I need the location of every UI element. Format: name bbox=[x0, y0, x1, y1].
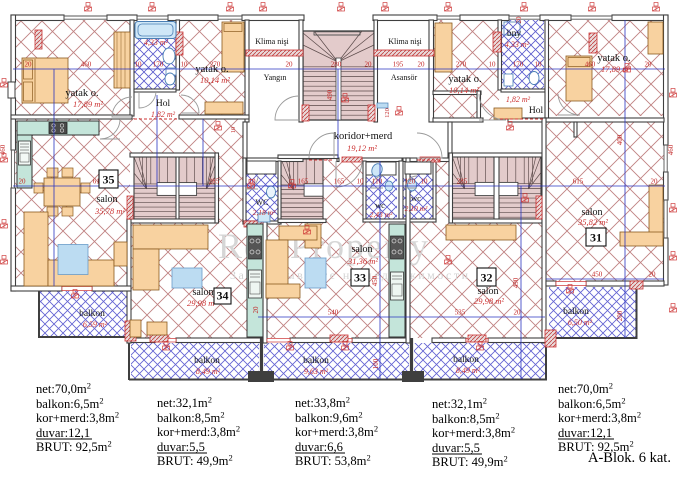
svg-text:yatak o.: yatak o. bbox=[195, 64, 228, 75]
svg-text:285: 285 bbox=[457, 178, 468, 186]
svg-text:20: 20 bbox=[645, 61, 653, 69]
svg-text:170: 170 bbox=[153, 61, 164, 69]
svg-text:bny: bny bbox=[507, 29, 522, 39]
svg-text:20: 20 bbox=[19, 178, 27, 186]
svg-text:20: 20 bbox=[649, 271, 657, 279]
svg-text:kor+merd:3,8m2: kor+merd:3,8m2 bbox=[36, 410, 119, 426]
svg-text:balkon:8,5m2: balkon:8,5m2 bbox=[432, 411, 500, 427]
svg-text:Klima nişi: Klima nişi bbox=[255, 37, 289, 46]
svg-text:285: 285 bbox=[209, 178, 220, 186]
svg-text:10: 10 bbox=[135, 61, 143, 69]
svg-text:balkon:8,5m2: balkon:8,5m2 bbox=[157, 410, 225, 426]
svg-text:6,59 m²: 6,59 m² bbox=[83, 320, 108, 329]
svg-text:A-Blok. 6 kat.: A-Blok. 6 kat. bbox=[588, 450, 671, 466]
svg-text:20: 20 bbox=[286, 61, 294, 69]
svg-text:balkon:9,6m2: balkon:9,6m2 bbox=[295, 410, 363, 426]
svg-text:kor+merd:3,8m2: kor+merd:3,8m2 bbox=[157, 424, 240, 440]
svg-text:4,33 m²: 4,33 m² bbox=[505, 40, 530, 49]
svg-text:kor+merd:3,8m2: kor+merd:3,8m2 bbox=[432, 425, 515, 441]
svg-text:120: 120 bbox=[384, 108, 391, 118]
svg-text:10: 10 bbox=[489, 61, 497, 69]
svg-text:17,89 m²: 17,89 m² bbox=[73, 99, 103, 109]
svg-text:balkon: balkon bbox=[194, 356, 220, 366]
svg-text:Asansör: Asansör bbox=[391, 73, 418, 82]
svg-text:Hol: Hol bbox=[529, 106, 544, 116]
svg-text:460: 460 bbox=[81, 61, 92, 69]
svg-text:WC: WC bbox=[256, 198, 269, 207]
svg-text:110: 110 bbox=[372, 178, 383, 186]
svg-text:Yangın: Yangın bbox=[264, 73, 287, 82]
svg-text:salon: salon bbox=[96, 194, 117, 205]
svg-text:120: 120 bbox=[405, 178, 416, 186]
svg-text:400: 400 bbox=[616, 134, 624, 145]
svg-text:kor+merd:3,8m2: kor+merd:3,8m2 bbox=[558, 410, 641, 426]
svg-text:wc: wc bbox=[375, 200, 385, 210]
svg-text:20: 20 bbox=[25, 61, 33, 69]
svg-text:BRUT: 49,9m2: BRUT: 49,9m2 bbox=[432, 454, 508, 470]
svg-text:10,14 m²: 10,14 m² bbox=[200, 75, 230, 85]
svg-text:20: 20 bbox=[651, 178, 659, 186]
svg-text:8,49 m²: 8,49 m² bbox=[196, 367, 221, 376]
svg-text:BRUT: 53,8m2: BRUT: 53,8m2 bbox=[295, 453, 371, 469]
svg-text:540: 540 bbox=[328, 309, 339, 317]
svg-text:35: 35 bbox=[103, 173, 115, 187]
svg-text:balkon: balkon bbox=[303, 356, 329, 366]
svg-text:450: 450 bbox=[371, 275, 379, 286]
svg-text:31,36 m²: 31,36 m² bbox=[347, 256, 378, 266]
svg-text:BRUT: 92,5m2: BRUT: 92,5m2 bbox=[36, 439, 112, 455]
svg-text:35,78 m²: 35,78 m² bbox=[94, 206, 125, 216]
svg-text:490: 490 bbox=[326, 89, 334, 100]
svg-text:33: 33 bbox=[354, 271, 366, 285]
svg-text:2,43 m²: 2,43 m² bbox=[370, 210, 393, 219]
svg-text:19,12 m²: 19,12 m² bbox=[347, 143, 377, 153]
svg-text:balkon: balkon bbox=[79, 309, 105, 319]
svg-text:10,14 m²: 10,14 m² bbox=[449, 85, 479, 95]
svg-text:balkon: balkon bbox=[453, 355, 479, 365]
svg-text:10: 10 bbox=[357, 178, 365, 186]
svg-text:balkon:6,5m2: balkon:6,5m2 bbox=[36, 396, 104, 412]
svg-text:460: 460 bbox=[667, 144, 675, 155]
svg-text:34: 34 bbox=[217, 289, 229, 303]
svg-text:net:32,1m2: net:32,1m2 bbox=[432, 396, 487, 412]
svg-text:4,33 m²: 4,33 m² bbox=[144, 38, 169, 47]
svg-text:490: 490 bbox=[512, 277, 520, 288]
svg-text:29,98 m²: 29,98 m² bbox=[187, 298, 217, 308]
svg-text:200: 200 bbox=[616, 310, 624, 321]
svg-text:salon: salon bbox=[192, 287, 213, 298]
svg-text:1,82 m²: 1,82 m² bbox=[151, 110, 176, 119]
svg-text:20: 20 bbox=[515, 16, 523, 24]
svg-text:460: 460 bbox=[585, 61, 596, 69]
svg-text:duvar:6,6: duvar:6,6 bbox=[295, 440, 343, 454]
svg-text:kor+merd:3,8m2: kor+merd:3,8m2 bbox=[295, 424, 378, 440]
svg-text:net:32,1m2: net:32,1m2 bbox=[157, 395, 212, 411]
svg-text:duvar:5,5: duvar:5,5 bbox=[432, 441, 480, 455]
svg-text:615: 615 bbox=[573, 178, 584, 186]
svg-text:wc: wc bbox=[411, 193, 421, 203]
svg-text:170: 170 bbox=[513, 61, 524, 69]
svg-text:165: 165 bbox=[334, 178, 345, 186]
svg-text:195: 195 bbox=[393, 61, 404, 69]
svg-text:net:70,0m2: net:70,0m2 bbox=[558, 381, 613, 397]
svg-text:yatak o.: yatak o. bbox=[65, 88, 98, 99]
svg-text:duvar:12,1: duvar:12,1 bbox=[558, 426, 612, 440]
svg-text:10: 10 bbox=[181, 61, 189, 69]
svg-text:balkon:6,5m2: balkon:6,5m2 bbox=[558, 396, 626, 412]
svg-text:20: 20 bbox=[365, 61, 373, 69]
svg-text:duvar:5,5: duvar:5,5 bbox=[157, 440, 205, 454]
svg-text:yatak o.: yatak o. bbox=[597, 53, 630, 64]
svg-text:35,82 m²: 35,82 m² bbox=[577, 217, 608, 227]
svg-text:270: 270 bbox=[456, 61, 467, 69]
svg-text:10: 10 bbox=[535, 61, 543, 69]
svg-text:10: 10 bbox=[421, 178, 429, 186]
svg-text:net:70,0m2: net:70,0m2 bbox=[36, 381, 91, 397]
svg-text:koridor+merd: koridor+merd bbox=[334, 131, 393, 142]
svg-text:165: 165 bbox=[298, 178, 309, 186]
svg-text:8,49 m²: 8,49 m² bbox=[456, 366, 481, 375]
svg-text:balkon: balkon bbox=[563, 307, 589, 317]
svg-text:Klima nişi: Klima nişi bbox=[388, 37, 422, 46]
svg-text:280: 280 bbox=[331, 61, 342, 69]
svg-text:17,89 m²: 17,89 m² bbox=[601, 64, 631, 74]
svg-text:1,82 m²: 1,82 m² bbox=[506, 95, 531, 104]
svg-text:6,50 m²: 6,50 m² bbox=[568, 318, 593, 327]
svg-text:32: 32 bbox=[481, 271, 493, 285]
svg-text:yatak o.: yatak o. bbox=[448, 74, 481, 85]
svg-text:450: 450 bbox=[592, 271, 603, 279]
svg-text:20: 20 bbox=[418, 61, 426, 69]
svg-text:20: 20 bbox=[514, 309, 522, 317]
svg-text:Hol: Hol bbox=[156, 99, 171, 109]
svg-text:535: 535 bbox=[455, 309, 466, 317]
svg-text:net:33,8m2: net:33,8m2 bbox=[295, 395, 350, 411]
svg-text:29,98 m²: 29,98 m² bbox=[474, 296, 504, 306]
svg-text:duvar:12,1: duvar:12,1 bbox=[36, 426, 90, 440]
svg-text:20: 20 bbox=[252, 306, 260, 314]
svg-text:9,63 m²: 9,63 m² bbox=[304, 367, 329, 376]
svg-text:2,10 m²: 2,10 m² bbox=[405, 204, 428, 213]
svg-text:100: 100 bbox=[372, 358, 380, 369]
svg-text:10: 10 bbox=[230, 127, 237, 134]
svg-text:2,18 m²: 2,18 m² bbox=[253, 208, 276, 217]
svg-text:31: 31 bbox=[590, 231, 602, 245]
svg-text:salon: salon bbox=[351, 244, 372, 255]
svg-text:BRUT: 49,9m2: BRUT: 49,9m2 bbox=[157, 453, 233, 469]
